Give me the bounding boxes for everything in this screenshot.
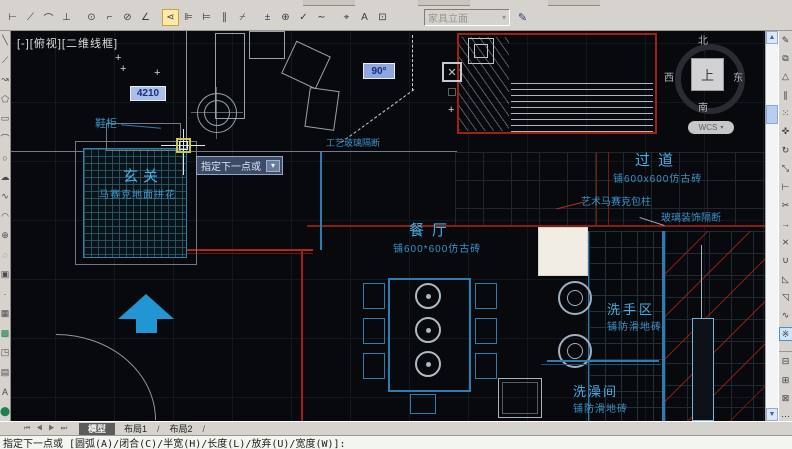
draw-gradient-icon[interactable]: ▩: [0, 324, 11, 344]
viewcube-top-face[interactable]: 上: [691, 58, 724, 91]
shower-tray-inner: [502, 382, 538, 414]
draw-point-icon[interactable]: ·: [0, 285, 11, 305]
viewcube-south[interactable]: 南: [698, 99, 708, 114]
toolbar-partial-group: [548, 0, 600, 6]
room-label-shower: 洗澡间: [573, 381, 618, 400]
chair-outline: [363, 283, 385, 309]
partition-line: [662, 231, 665, 421]
modify-chamfer-icon[interactable]: ◺: [779, 272, 792, 286]
draw-ellipse-arc-icon[interactable]: ⊕: [0, 226, 11, 246]
tab-nav-buttons[interactable]: ⏮ ◀ ▶ ⏭: [24, 425, 69, 433]
draw-hatch-icon[interactable]: ▦: [0, 304, 11, 324]
scroll-down-button[interactable]: ▼: [766, 408, 778, 421]
draw-scale-ref-icon[interactable]: ⬤: [0, 402, 11, 422]
viewcube-wcs-menu[interactable]: WCS ▾: [688, 121, 734, 134]
modify-join-icon[interactable]: ∪: [779, 254, 792, 268]
modify-offset-icon[interactable]: ∥: [779, 88, 792, 102]
toolbar-partial-group: [418, 0, 470, 6]
room-sub-corridor: 铺600x600仿古砖: [613, 170, 702, 185]
viewcube-east[interactable]: 东: [733, 69, 743, 84]
modify-trim-icon[interactable]: ✂: [779, 199, 792, 213]
modify-break-point-icon[interactable]: ⨯: [779, 235, 792, 249]
draw-ellipse-icon[interactable]: ◠: [0, 207, 11, 227]
glass-partition-line: [320, 152, 322, 250]
tab-model[interactable]: 模型: [79, 423, 115, 435]
armchair-outline: [281, 41, 331, 90]
draw-circle-icon[interactable]: ○: [0, 148, 11, 168]
room-sub-shower: 铺防滑地砖: [573, 400, 628, 415]
layout-tab-bar: ⏮ ◀ ▶ ⏭ 模型 布局1 / 布局2 /: [0, 421, 792, 435]
scroll-up-button[interactable]: ▲: [766, 31, 778, 44]
wash-basin-inner: [567, 343, 583, 359]
room-sub-dining: 铺600*600仿古砖: [393, 240, 481, 255]
viewcube-west[interactable]: 西: [664, 69, 674, 84]
room-label-corridor: 过道: [635, 149, 681, 170]
dim-angular-icon[interactable]: ∠: [137, 9, 154, 26]
drawing-canvas[interactable]: [-][俯视][二维线框]: [11, 31, 765, 421]
blip-marker: +: [448, 107, 454, 113]
draw-insert-block-icon[interactable]: ◌: [0, 246, 11, 266]
annotation-glass-partition: 工艺玻璃隔断: [326, 136, 380, 149]
chair-outline: [475, 353, 497, 379]
chevron-down-icon: ▾: [720, 124, 723, 131]
draw-spline-icon[interactable]: ∿: [0, 187, 11, 207]
wall-line-red: [307, 225, 765, 227]
dim-tolerance-icon[interactable]: ±: [259, 9, 276, 26]
wall-line-red: [301, 249, 303, 421]
dim-aligned-icon[interactable]: ⟋: [22, 9, 39, 26]
dim-space-icon[interactable]: ∥: [216, 9, 233, 26]
entry-direction-arrow: [118, 294, 175, 333]
modify-spline-edit-icon[interactable]: ∿: [779, 309, 792, 323]
counter-line: [547, 360, 659, 362]
room-label-entrance: 玄关: [123, 165, 163, 186]
toolbar-partial-group: [303, 0, 355, 6]
modify-array-icon[interactable]: ⁙: [779, 107, 792, 121]
modify-stretch-icon[interactable]: ⊢: [779, 180, 792, 194]
viewport-label[interactable]: [-][俯视][二维线框]: [17, 35, 118, 51]
dim-jogged-icon[interactable]: ⌐: [101, 9, 118, 26]
tea-table-inner: [204, 100, 230, 126]
dimension-toolbar-icons: ⊢⟋⌒⊥⊙⌐⊘∠⋖⊫⊨∥⌿±⊕✓∼⌖A⊡: [4, 9, 392, 26]
dim-inspect-icon[interactable]: ✓: [295, 9, 312, 26]
top-toolbar-area: ⊢⟋⌒⊥⊙⌐⊘∠⋖⊫⊨∥⌿±⊕✓∼⌖A⊡ 家具立面 ▾ ✎: [0, 0, 792, 31]
draworder-above-icon[interactable]: ⊠: [779, 391, 792, 405]
draw-line-icon[interactable]: ╲: [0, 31, 11, 51]
dim-edit-icon[interactable]: ⌖: [338, 9, 355, 26]
osnap-marker: [176, 138, 191, 153]
dim-update-icon[interactable]: ⊡: [374, 9, 391, 26]
draw-rectangle-icon[interactable]: ▭: [0, 109, 11, 129]
draw-arc-icon[interactable]: ⌒: [0, 129, 11, 149]
chair-outline: [363, 318, 385, 344]
tooltip-text: 指定下一点或: [201, 158, 261, 173]
draw-revcloud-icon[interactable]: ☁: [0, 168, 11, 188]
scrollbar-thumb[interactable]: [766, 105, 778, 124]
command-prompt: 指定下一点或 [圆弧(A)/闭合(C)/半宽(H)/长度(L)/放弃(U)/宽度…: [3, 435, 346, 449]
chair-outline: [410, 394, 436, 414]
dynamic-input-angle[interactable]: 90°: [363, 63, 395, 79]
tab-layout2[interactable]: 布局2: [160, 423, 201, 435]
sofa-outline: [249, 31, 285, 59]
counter-line: [541, 364, 661, 365]
dynamic-input-tooltip: 指定下一点或 ▾: [196, 156, 283, 175]
column-line-red: [596, 152, 597, 225]
dynamic-input-length[interactable]: 4210: [130, 86, 166, 101]
command-line[interactable]: 指定下一点或 [圆弧(A)/闭合(C)/半宽(H)/长度(L)/放弃(U)/宽度…: [0, 435, 792, 449]
draw-mtext-icon[interactable]: A: [0, 382, 11, 402]
dim-linear-icon[interactable]: ⊢: [4, 9, 21, 26]
wash-basin-inner: [567, 290, 583, 306]
room-label-dining: 餐厅: [409, 219, 455, 240]
tea-table-axis: [191, 112, 243, 113]
modify-rotate-icon[interactable]: ↻: [779, 143, 792, 157]
draworder-front-icon[interactable]: ⊟: [779, 351, 792, 369]
right-tile-grid-red-hatch: [665, 231, 765, 421]
dim-jogged-linear-icon[interactable]: ∼: [313, 9, 330, 26]
chair-outline: [363, 353, 385, 379]
dim-style-manager-icon[interactable]: ✎: [514, 9, 531, 26]
place-setting: [415, 283, 441, 309]
dim-center-mark-icon[interactable]: ⊕: [277, 9, 294, 26]
dim-baseline-icon[interactable]: ⊫: [180, 9, 197, 26]
wall-line: [186, 31, 187, 151]
modify-explode-icon[interactable]: ※: [779, 327, 792, 341]
place-setting: [415, 317, 441, 343]
modify-fillet-icon[interactable]: ◹: [779, 290, 792, 304]
arrow-stem: [136, 318, 157, 333]
modify-scale-icon[interactable]: ⤡: [779, 162, 792, 176]
tab-separator: /: [203, 424, 206, 434]
stripe-hatch: [511, 83, 653, 132]
place-setting: [415, 351, 441, 377]
modify-toolbar: ✎⧉△∥⁙✜↻⤡⊢✂→⨯∪◺◹∿※⊟⊞⊠⋯: [778, 31, 792, 421]
dim-text-edit-icon[interactable]: A: [356, 9, 373, 26]
dim-ordinate-icon[interactable]: ⊥: [58, 9, 75, 26]
room-sub-entrance: 马赛克地面拼花: [99, 186, 176, 201]
blip-marker: +: [154, 70, 160, 76]
dim-arc-length-icon[interactable]: ⌒: [40, 9, 57, 26]
door-panel: [692, 318, 714, 421]
chevron-down-icon: ▾: [502, 13, 506, 22]
tracking-line: [412, 35, 413, 91]
draw-polygon-icon[interactable]: ⬠: [0, 90, 11, 110]
modify-mirror-icon[interactable]: △: [779, 70, 792, 84]
autocad-window: ⊢⟋⌒⊥⊙⌐⊘∠⋖⊫⊨∥⌿±⊕✓∼⌖A⊡ 家具立面 ▾ ✎ ╲⟋↝⬠▭⌒○☁∿◠…: [0, 0, 792, 446]
chair-outline: [475, 318, 497, 344]
modify-copy-icon[interactable]: ⧉: [779, 51, 792, 65]
annotation-glass-deco-partition: 玻璃装饰隔断: [661, 209, 721, 224]
chair-outline: [475, 283, 497, 309]
modify-erase-icon[interactable]: ✎: [779, 33, 792, 47]
modify-extend-icon[interactable]: →: [779, 217, 792, 231]
dim-style-dropdown[interactable]: 家具立面 ▾: [424, 9, 510, 26]
diagonal-hatch: [459, 37, 509, 131]
draw-toolbar: ╲⟋↝⬠▭⌒○☁∿◠⊕◌▣·▦▩◳▤A⬤: [0, 31, 11, 421]
modify-move-icon[interactable]: ✜: [779, 125, 792, 139]
arrow-head: [118, 294, 174, 319]
dim-radius-icon[interactable]: ⊙: [83, 9, 100, 26]
white-block: [538, 227, 588, 276]
draworder-back-icon[interactable]: ⊞: [779, 373, 792, 387]
blip-marker: +: [115, 55, 121, 61]
wcs-label: WCS: [699, 123, 718, 132]
dim-continue-icon[interactable]: ⊨: [198, 9, 215, 26]
blip-marker: +: [120, 66, 126, 72]
draw-region-icon[interactable]: ◳: [0, 343, 11, 363]
tab-layout1[interactable]: 布局1: [115, 423, 156, 435]
dim-style-value: 家具立面: [428, 10, 468, 25]
draw-make-block-icon[interactable]: ▣: [0, 265, 11, 285]
room-sub-wash: 铺防滑地砖: [607, 318, 662, 333]
annotation-art-mosaic-column: 艺术马赛克包柱: [581, 193, 651, 208]
draw-polyline-icon[interactable]: ↝: [0, 70, 11, 90]
dim-quick-icon[interactable]: ⋖: [162, 9, 179, 26]
small-node-marker: [448, 88, 456, 96]
tracking-line: [341, 89, 414, 143]
vertical-scrollbar[interactable]: ▲ ▼: [765, 31, 778, 421]
room-label-wash: 洗手区: [607, 299, 655, 318]
block-x-marker: ✕: [442, 62, 462, 82]
annotation-shoe-cabinet: 鞋柜: [95, 115, 117, 131]
dim-break-icon[interactable]: ⌿: [234, 9, 251, 26]
draworder-more-icon[interactable]: ⋯: [779, 410, 792, 424]
draw-xline-icon[interactable]: ⟋: [0, 51, 11, 71]
dim-diameter-icon[interactable]: ⊘: [119, 9, 136, 26]
tea-table-axis: [216, 87, 217, 139]
column-line-red: [608, 152, 609, 225]
door-swing-arc: [56, 334, 156, 420]
down-arrow-key-icon: ▾: [266, 160, 280, 172]
tab-separator: /: [157, 424, 160, 434]
toolbar-partial-row: [0, 0, 792, 5]
dimension-toolbar: ⊢⟋⌒⊥⊙⌐⊘∠⋖⊫⊨∥⌿±⊕✓∼⌖A⊡ 家具立面 ▾ ✎: [0, 5, 792, 29]
armchair-outline: [304, 87, 339, 131]
draw-table-icon[interactable]: ▤: [0, 363, 11, 383]
viewcube-north[interactable]: 北: [698, 32, 708, 47]
